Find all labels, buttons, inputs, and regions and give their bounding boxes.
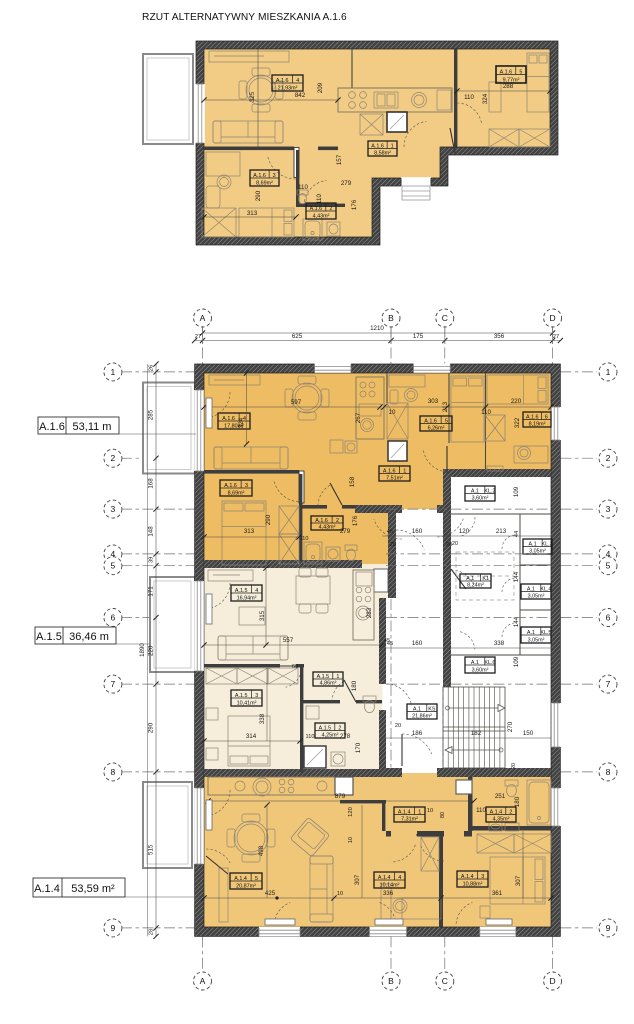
svg-text:8,24m²: 8,24m² xyxy=(467,582,484,588)
svg-text:A.1.6: A.1.6 xyxy=(383,468,396,474)
svg-text:110: 110 xyxy=(476,807,486,814)
svg-text:A.1: A.1 xyxy=(527,630,535,636)
svg-text:290: 290 xyxy=(147,722,154,733)
svg-text:1210: 1210 xyxy=(370,325,384,332)
svg-text:D: D xyxy=(550,313,556,323)
svg-text:110: 110 xyxy=(464,94,474,101)
svg-text:186: 186 xyxy=(412,730,423,737)
svg-text:1890: 1890 xyxy=(139,643,146,657)
svg-text:A.1: A.1 xyxy=(471,660,479,666)
svg-text:4: 4 xyxy=(255,588,258,594)
svg-text:220: 220 xyxy=(511,398,522,405)
svg-text:27: 27 xyxy=(195,334,201,340)
svg-text:8: 8 xyxy=(606,767,611,777)
svg-text:303: 303 xyxy=(428,398,439,405)
svg-text:45: 45 xyxy=(384,638,390,644)
svg-text:20: 20 xyxy=(390,542,396,548)
svg-text:176: 176 xyxy=(351,199,358,210)
svg-text:176: 176 xyxy=(352,515,359,526)
svg-text:285: 285 xyxy=(147,409,154,420)
svg-text:4: 4 xyxy=(296,78,299,84)
svg-text:10,88m²: 10,88m² xyxy=(463,881,483,887)
svg-text:175: 175 xyxy=(413,333,424,340)
svg-text:4,43m²: 4,43m² xyxy=(319,524,336,530)
svg-text:498: 498 xyxy=(258,845,265,856)
svg-text:A.1.6: A.1.6 xyxy=(310,206,323,212)
svg-text:2: 2 xyxy=(329,206,332,212)
svg-text:336: 336 xyxy=(383,890,394,897)
svg-text:A.1.5: A.1.5 xyxy=(235,693,248,699)
svg-text:6: 6 xyxy=(111,613,116,623)
svg-text:3,60m²: 3,60m² xyxy=(472,495,489,501)
svg-text:307: 307 xyxy=(354,874,361,885)
svg-text:5: 5 xyxy=(606,561,611,571)
svg-text:158: 158 xyxy=(349,476,356,487)
svg-text:5: 5 xyxy=(111,561,116,571)
svg-text:3: 3 xyxy=(273,173,276,179)
svg-text:322: 322 xyxy=(514,417,521,428)
svg-text:3: 3 xyxy=(245,483,248,489)
svg-text:A.1.4: A.1.4 xyxy=(398,809,411,815)
svg-text:6: 6 xyxy=(545,414,548,420)
svg-text:7: 7 xyxy=(111,679,116,689)
svg-text:A.1: A.1 xyxy=(413,706,421,712)
svg-text:171: 171 xyxy=(147,586,154,597)
svg-text:45: 45 xyxy=(387,529,393,535)
svg-text:28: 28 xyxy=(148,929,154,935)
svg-text:110: 110 xyxy=(481,409,491,416)
svg-text:10: 10 xyxy=(389,409,396,416)
svg-text:180: 180 xyxy=(514,796,521,807)
svg-text:356: 356 xyxy=(494,333,505,340)
svg-text:A.1.4: A.1.4 xyxy=(234,876,247,882)
svg-text:A.1.5: A.1.5 xyxy=(235,588,248,594)
svg-text:278: 278 xyxy=(340,733,351,740)
svg-text:20: 20 xyxy=(511,763,517,769)
svg-text:120: 120 xyxy=(348,807,354,817)
svg-text:213: 213 xyxy=(496,528,507,535)
svg-text:A.1.4: A.1.4 xyxy=(490,809,503,815)
svg-text:3,05m²: 3,05m² xyxy=(529,548,546,554)
svg-text:10: 10 xyxy=(348,837,354,843)
svg-text:A.1.5: A.1.5 xyxy=(317,674,330,680)
svg-text:10,14m²: 10,14m² xyxy=(380,882,400,888)
svg-text:425: 425 xyxy=(265,890,276,897)
svg-text:6: 6 xyxy=(606,613,611,623)
svg-text:A.1.6: A.1.6 xyxy=(224,483,237,489)
svg-text:A.1: A.1 xyxy=(471,488,479,494)
svg-text:20: 20 xyxy=(395,723,401,729)
svg-text:A.1.6: A.1.6 xyxy=(424,418,437,424)
svg-text:279: 279 xyxy=(340,528,351,535)
svg-text:A.1.4: A.1.4 xyxy=(461,874,474,880)
svg-text:7,31m²: 7,31m² xyxy=(401,816,418,822)
svg-text:16,94m²: 16,94m² xyxy=(237,595,257,601)
svg-text:110: 110 xyxy=(306,734,315,740)
svg-text:515: 515 xyxy=(147,844,154,855)
svg-text:1: 1 xyxy=(391,143,394,149)
svg-text:1: 1 xyxy=(418,809,421,815)
svg-text:279: 279 xyxy=(341,180,352,187)
svg-text:K1: K1 xyxy=(482,576,489,582)
svg-text:220: 220 xyxy=(147,645,154,656)
svg-text:5: 5 xyxy=(445,418,448,424)
svg-text:B: B xyxy=(388,976,394,986)
svg-text:110: 110 xyxy=(298,184,308,191)
svg-text:2: 2 xyxy=(509,809,512,815)
svg-text:8,58m²: 8,58m² xyxy=(374,150,391,156)
svg-text:80: 80 xyxy=(440,812,446,818)
svg-text:C: C xyxy=(442,313,448,323)
svg-text:144: 144 xyxy=(513,616,520,627)
svg-text:597: 597 xyxy=(291,399,302,406)
svg-text:A.1.6: A.1.6 xyxy=(39,421,65,433)
svg-text:313: 313 xyxy=(244,528,255,535)
svg-text:A.1.6: A.1.6 xyxy=(500,69,513,75)
svg-text:KL.3: KL.3 xyxy=(542,541,553,547)
svg-text:267: 267 xyxy=(355,412,362,423)
svg-text:8,19m²: 8,19m² xyxy=(529,421,546,427)
svg-text:109: 109 xyxy=(513,486,520,497)
svg-text:8: 8 xyxy=(111,767,116,777)
svg-text:53,11 m: 53,11 m xyxy=(73,421,112,433)
svg-text:209: 209 xyxy=(317,82,324,93)
svg-text:180: 180 xyxy=(351,680,358,691)
svg-text:5: 5 xyxy=(255,876,258,882)
svg-text:4,86m²: 4,86m² xyxy=(320,680,337,686)
svg-text:A.1.6: A.1.6 xyxy=(526,414,539,420)
svg-text:324: 324 xyxy=(482,93,489,104)
svg-text:182: 182 xyxy=(471,730,482,737)
svg-text:A.1.5: A.1.5 xyxy=(319,725,332,731)
svg-text:36,46 m: 36,46 m xyxy=(69,631,109,643)
svg-text:4,43m²: 4,43m² xyxy=(313,213,330,219)
svg-text:5: 5 xyxy=(519,69,522,75)
svg-text:290: 290 xyxy=(265,514,272,525)
svg-text:RZUT ALTERNATYWNY MIESZKANIA A: RZUT ALTERNATYWNY MIESZKANIA A.1.6 xyxy=(142,12,347,23)
svg-text:148: 148 xyxy=(147,526,154,537)
svg-text:39: 39 xyxy=(148,557,154,563)
svg-text:168: 168 xyxy=(147,478,154,489)
svg-text:315: 315 xyxy=(259,610,266,621)
svg-text:3,60m²: 3,60m² xyxy=(472,667,489,673)
svg-text:A.1: A.1 xyxy=(529,541,537,547)
svg-text:A: A xyxy=(200,976,206,986)
svg-text:A.1.6: A.1.6 xyxy=(371,143,384,149)
svg-text:324: 324 xyxy=(238,417,245,428)
svg-text:283: 283 xyxy=(366,607,373,618)
svg-text:2: 2 xyxy=(336,518,339,524)
svg-text:1: 1 xyxy=(111,367,116,377)
svg-text:10: 10 xyxy=(337,891,343,897)
svg-text:110: 110 xyxy=(300,536,309,542)
svg-text:26: 26 xyxy=(148,365,154,371)
svg-text:53,59 m²: 53,59 m² xyxy=(71,883,115,895)
svg-text:KL.5: KL.5 xyxy=(540,630,551,636)
svg-text:625: 625 xyxy=(292,333,303,340)
svg-text:A: A xyxy=(200,313,206,323)
svg-text:21,93m²: 21,93m² xyxy=(278,85,298,91)
svg-text:3,05m²: 3,05m² xyxy=(528,593,545,599)
svg-text:2: 2 xyxy=(606,453,611,463)
svg-text:10: 10 xyxy=(427,808,433,814)
svg-text:20: 20 xyxy=(452,541,458,547)
svg-text:2: 2 xyxy=(338,725,341,731)
svg-text:144: 144 xyxy=(513,571,520,582)
svg-text:A.1.6: A.1.6 xyxy=(276,78,289,84)
svg-text:B: B xyxy=(388,313,394,323)
svg-text:20,87m²: 20,87m² xyxy=(236,883,256,889)
svg-text:KL.6: KL.6 xyxy=(484,660,495,666)
svg-text:7: 7 xyxy=(606,679,611,689)
svg-text:A.1.4: A.1.4 xyxy=(378,875,391,881)
svg-text:361: 361 xyxy=(492,890,503,897)
svg-text:1: 1 xyxy=(403,468,406,474)
svg-text:288: 288 xyxy=(503,83,514,90)
svg-text:338: 338 xyxy=(494,640,505,647)
svg-text:4: 4 xyxy=(398,875,401,881)
svg-text:8,69m²: 8,69m² xyxy=(256,180,273,186)
svg-text:A.1.6: A.1.6 xyxy=(222,416,235,422)
svg-text:8,69m²: 8,69m² xyxy=(228,490,245,496)
svg-text:7,51m²: 7,51m² xyxy=(386,475,403,481)
svg-text:290: 290 xyxy=(255,190,262,201)
svg-text:A.1.6: A.1.6 xyxy=(253,173,266,179)
svg-text:338: 338 xyxy=(259,713,266,724)
svg-text:879: 879 xyxy=(335,793,346,800)
svg-text:842: 842 xyxy=(295,92,306,99)
svg-text:270: 270 xyxy=(507,721,514,732)
svg-text:120: 120 xyxy=(459,528,470,535)
svg-text:157: 157 xyxy=(336,154,343,165)
svg-text:3,05m²: 3,05m² xyxy=(528,637,545,643)
svg-text:27: 27 xyxy=(553,334,559,340)
svg-text:313: 313 xyxy=(247,210,258,217)
svg-text:A.1: A.1 xyxy=(466,576,474,582)
svg-text:3: 3 xyxy=(606,504,611,514)
svg-text:A.1.5: A.1.5 xyxy=(36,631,62,643)
svg-text:3: 3 xyxy=(481,874,484,880)
svg-text:251: 251 xyxy=(495,793,506,800)
svg-text:160: 160 xyxy=(412,640,423,647)
svg-text:110: 110 xyxy=(316,194,323,204)
svg-text:557: 557 xyxy=(283,637,294,644)
svg-text:A.1: A.1 xyxy=(527,586,535,592)
svg-text:3: 3 xyxy=(255,693,258,699)
svg-text:1: 1 xyxy=(336,674,339,680)
svg-text:2: 2 xyxy=(111,453,116,463)
svg-text:1: 1 xyxy=(606,367,611,377)
svg-text:A.1.6: A.1.6 xyxy=(315,518,328,524)
svg-text:160: 160 xyxy=(412,528,423,535)
svg-text:D: D xyxy=(550,976,556,986)
svg-text:KL.4: KL.4 xyxy=(540,586,551,592)
svg-text:KS: KS xyxy=(428,706,436,712)
svg-text:60: 60 xyxy=(292,664,298,670)
svg-text:9: 9 xyxy=(606,923,611,933)
svg-text:6,26m²: 6,26m² xyxy=(428,425,445,431)
svg-text:4,25m²: 4,25m² xyxy=(322,732,339,738)
svg-text:170: 170 xyxy=(355,742,362,753)
svg-text:10,41m²: 10,41m² xyxy=(237,700,257,706)
svg-text:9: 9 xyxy=(111,923,116,933)
svg-text:44: 44 xyxy=(514,530,520,537)
svg-text:3: 3 xyxy=(111,504,116,514)
svg-text:4,35m²: 4,35m² xyxy=(493,816,510,822)
svg-text:314: 314 xyxy=(246,733,257,740)
svg-text:325: 325 xyxy=(249,91,256,102)
svg-text:150: 150 xyxy=(523,730,534,737)
svg-text:307: 307 xyxy=(515,875,522,886)
svg-text:109: 109 xyxy=(513,656,520,667)
svg-text:A.1.4: A.1.4 xyxy=(34,883,60,895)
svg-text:KL.2: KL.2 xyxy=(484,488,495,494)
svg-text:C: C xyxy=(442,976,448,986)
svg-text:21,86m²: 21,86m² xyxy=(412,713,432,719)
